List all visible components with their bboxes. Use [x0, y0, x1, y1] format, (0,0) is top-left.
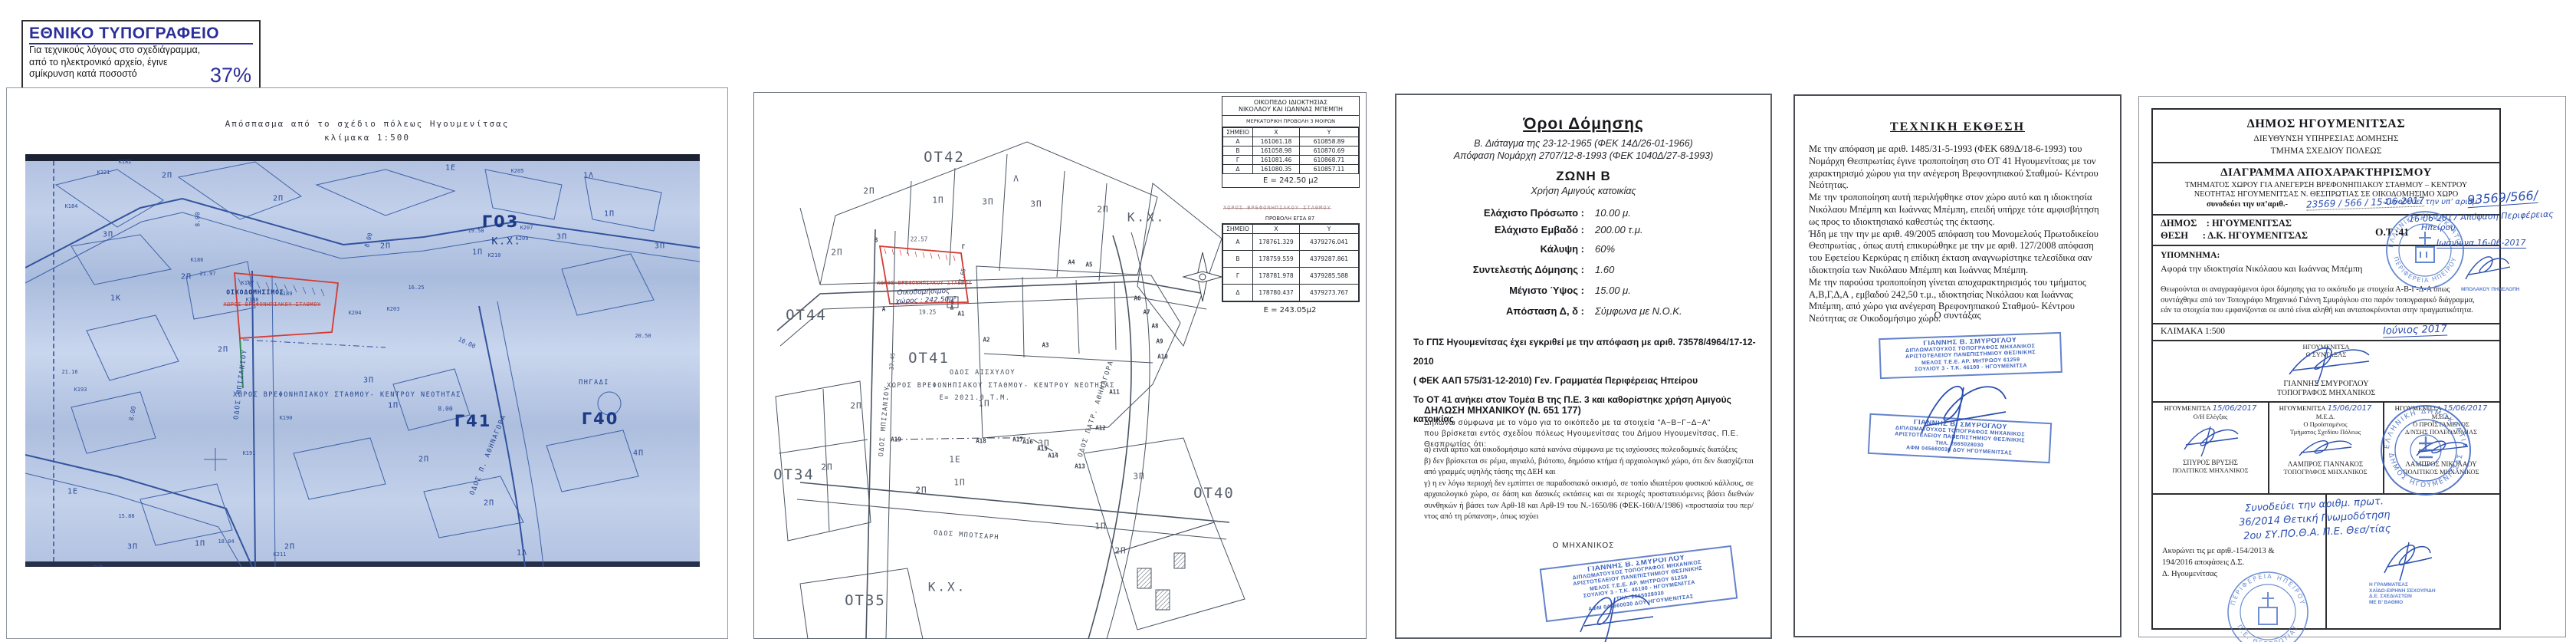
map-label: ΧΩΡΟΣ ΒΡΕΦΟΝΗΠΙΑΚΟΥ ΣΤΑΘΜΟΥ- ΚΕΝΤΡΟΥ ΝΕΟ…	[233, 391, 461, 399]
col-city: ΗΓΟΥΜΕΝΙΤΣΑ	[2164, 404, 2211, 412]
map-label: 19.25	[919, 309, 937, 316]
map-label: 3Π	[982, 197, 993, 207]
directorate: ΔΙΕΥΘΥΝΣΗ ΥΠΗΡΕΣΙΑΣ ΔΟΜΗΣΗΣ	[2153, 134, 2499, 143]
map-label: Κ211	[274, 551, 287, 558]
col-date-handwritten: 15/06/2017	[2213, 404, 2257, 413]
cell: Γ	[1223, 268, 1253, 285]
cell: 610857.11	[1300, 165, 1359, 174]
map-label: 2Π	[863, 186, 875, 196]
date-handwritten: Ιούνιος 2017	[2383, 324, 2447, 338]
report-paragraph: Ήδη με την την με αριθ. 49/2005 απόφαση …	[1809, 229, 2109, 277]
stamp-line: Δ.Ε. ΣΧΕΔΙΑΣΤΩΝ	[2369, 594, 2436, 600]
declaration-item: γ) η εν λόγω περιοχή δεν εμπίπτει σε παρ…	[1424, 479, 1754, 523]
col-header: Υ	[1300, 128, 1359, 137]
zone-title: ΖΩΝΗ Β	[1396, 169, 1770, 184]
cert-line: συντάχθηκε από τον Τοπογράφο Μηχανικό Γι…	[2161, 295, 2492, 306]
red-area-struck-label: ΧΩΡΟΣ ΒΡΕΦΟΝΗΠΙΑΚΟΥ ΣΤΑΘΜΟΥ	[223, 301, 320, 308]
map-label: ΧΩΡΟΣ ΒΡΕΦΟΝΗΠΙΑΚΟΥ ΣΤΑΘΜΟΥ- ΚΕΝΤΡΟΥ ΝΕΟ…	[887, 382, 1115, 390]
term-value: 1.60	[1595, 264, 1614, 275]
map-label: 2Π	[484, 499, 494, 508]
cell: Β	[1223, 251, 1253, 268]
map-label: 2Π	[850, 401, 861, 411]
map-label: 2Π	[93, 565, 103, 568]
col-role: Ο/Η Ελέγξας	[2153, 413, 2268, 420]
map-label: 1Ε	[445, 164, 456, 173]
map-label: ΠΗΓΑΔΙ	[579, 379, 609, 387]
map-label: 3Π	[1133, 472, 1144, 482]
declaration-item: α) είναι άρτιο και οικοδομήσιμο κατά καν…	[1424, 445, 1754, 456]
col-header: Χ	[1253, 225, 1300, 234]
map-label: Γ	[962, 244, 966, 251]
title-block-frame: ΔΗΜΟΣ ΗΓΟΥΜΕΝΙΤΣΑΣ ΔΙΕΥΘΥΝΣΗ ΥΠΗΡΕΣΙΑΣ Δ…	[2151, 108, 2501, 630]
signature-icon	[2295, 436, 2356, 460]
map-label: 2Π	[1114, 546, 1126, 556]
col-header: ΣΗΜΕΙΟ	[1223, 225, 1253, 234]
cell: 4379273.767	[1300, 285, 1359, 301]
cert-line: εάν τα στοιχεία που εμφανίζονται σε αυτό…	[2161, 305, 2492, 316]
map-label: Α19	[891, 436, 901, 443]
map-label: Κ191	[243, 450, 256, 456]
legend-line: Αφορά την ιδιοκτησία Νικόλαου και Ιωάννα…	[2161, 263, 2362, 275]
col-header: ΣΗΜΕΙΟ	[1223, 128, 1253, 137]
term-row: Απόσταση Δ, δ :Σύμφωνα με Ν.Ο.Κ.	[1412, 305, 1749, 317]
field-key: ΘΕΣΗ	[2161, 230, 2188, 241]
struck-note: ΧΩΡΟΣ ΒΡΕΦΟΝΗΠΙΑΚΟΥ ΣΤΑΘΜΟΥ	[1223, 205, 1331, 211]
map-label: 1Λ	[517, 549, 527, 558]
term-key: Απόσταση Δ, δ :	[1412, 305, 1584, 317]
term-value: 60%	[1595, 243, 1615, 255]
term-value: Σύμφωνα με Ν.Ο.Κ.	[1595, 305, 1682, 317]
term-row: Κάλυψη :60%	[1412, 243, 1749, 255]
table-row: ΣΗΜΕΙΟ Χ Υ	[1223, 225, 1359, 234]
col-name: ΣΠΥΡΟΣ ΒΡΥΣΗΣ	[2153, 459, 2268, 466]
term-row: Μέγιστο Ύψος :15.00 μ.	[1412, 285, 1749, 296]
cell: 161061.18	[1253, 137, 1300, 147]
cell: 4379285.588	[1300, 268, 1359, 285]
table-row: Δ178780.4374379273.767	[1223, 285, 1359, 301]
divider	[2153, 323, 2499, 324]
table2-title: ΠΡΟΒΟΛΗ ΕΓΣΑ 87	[1222, 216, 1358, 222]
engineer-name: ΓΙΑΝΝΗΣ ΣΜΥΡΟΓΛΟΥ	[2153, 380, 2499, 388]
cell: Δ	[1223, 285, 1253, 301]
table-row: ΣΗΜΕΙΟ Χ Υ	[1223, 128, 1359, 137]
map-label: ΟΔΟΣ ΑΙΣΧΥΛΟΥ	[950, 369, 1016, 377]
declaration-item: β) δεν βρίσκεται σε ρέμα, αιγιαλό, βιότο…	[1424, 456, 1754, 479]
map-label: Α6	[1134, 295, 1140, 302]
map-label: Γ41	[454, 412, 492, 430]
page-technical-report: ΤΕΧΝΙΚΗ ΕΚΘΕΣΗ Με την απόφαση με αριθ. 1…	[1793, 94, 2122, 637]
banner-line: Για τεχνικούς λόγους στο σχεδιάγραμμα,	[29, 44, 253, 57]
map-label: 3Π	[103, 231, 113, 239]
map-label: Λ	[1013, 174, 1019, 184]
map-label: Α13	[1075, 463, 1085, 470]
table-header: ΟΙΚΟΠΕΔΟ ΙΔΙΟΚΤΗΣΙΑΣ	[1222, 97, 1359, 106]
scanned-document-strip: ΕΘΝΙΚΟ ΤΥΠΟΓΡΑΦΕΙΟ Για τεχνικούς λόγους …	[0, 0, 2576, 642]
term-key: Συντελεστής Δόμησης :	[1412, 264, 1584, 275]
map-label: Α15	[1037, 446, 1048, 453]
gps-line: Το ΓΠΣ Ηγουμενίτσας έχει εγκριθεί με την…	[1413, 333, 1760, 371]
signature-icon	[1573, 586, 1665, 642]
col-header: Υ	[1300, 225, 1359, 234]
reduction-percent: 37%	[210, 64, 251, 87]
survey-map-area: ΧΩΡΟΣ ΒΡΕΦΟΝΗΠΙΑΚΟΥ ΣΤΑΘΜΟΥ Οικοδομήσιμο…	[754, 93, 1367, 639]
term-value: 10.00 μ.	[1595, 207, 1631, 219]
map-label: Α10	[1157, 354, 1168, 361]
col-header: Χ	[1253, 128, 1300, 137]
map-label: Κ221	[97, 170, 110, 176]
map-label: 1Π	[1094, 522, 1106, 532]
map-label: 22.57	[911, 236, 928, 243]
map-label: 1Π	[195, 540, 205, 548]
cell: Α	[1223, 234, 1253, 251]
cell: 161080.35	[1253, 165, 1300, 174]
banner-title: ΕΘΝΙΚΟ ΤΥΠΟΓΡΑΦΕΙΟ	[29, 25, 253, 44]
map-label: Κ187	[241, 280, 254, 286]
municipality-title: ΔΗΜΟΣ ΗΓΟΥΜΕΝΙΤΣΑΣ	[2153, 117, 2499, 131]
map-label: 3Π	[363, 377, 374, 385]
field-dimos: ΔΗΜΟΣ : ΗΓΟΥΜΕΝΙΤΣΑΣ	[2161, 218, 2292, 229]
cell: Δ	[1223, 165, 1253, 174]
divider	[2153, 162, 2499, 163]
area-value: Ε = 242.50 μ2	[1222, 174, 1359, 187]
coords-table-egsa87: ΣΗΜΕΙΟ Χ Υ Α178761.3294379276.041 Β17875…	[1222, 223, 1360, 302]
field-value: : Δ.Κ. ΗΓΟΥΜΕΝΙΤΣΑΣ	[2203, 230, 2308, 241]
report-body: Με την απόφαση με αριθ. 1485/31-5-1993 (…	[1809, 143, 2109, 325]
cell: Α	[1223, 137, 1253, 147]
map-label: Α5	[1085, 262, 1092, 268]
map-label: Α12	[1095, 425, 1106, 432]
term-row: Συντελεστής Δόμησης :1.60	[1412, 264, 1749, 275]
diagram-sub: ΤΜΗΜΑΤΟΣ ΧΩΡΟΥ ΓΙΑ ΑΝΕΓΕΡΣΗ ΒΡΕΦΟΝΗΠΙΑΚΟ…	[2153, 181, 2499, 189]
page-survey-map: ΧΩΡΟΣ ΒΡΕΦΟΝΗΠΙΑΚΟΥ ΣΤΑΘΜΟΥ Οικοδομήσιμο…	[753, 92, 1367, 639]
cell: 4379287.861	[1300, 251, 1359, 268]
map-label: Κ204	[349, 310, 362, 316]
map-label: 8.00	[195, 212, 202, 226]
map-label: Κ.Χ.	[491, 236, 521, 248]
col-name: ΛΑΜΠΡΟΣ ΓΙΑΝΝΑΚΟΣ	[2268, 460, 2383, 468]
map-label: Κ210	[488, 252, 501, 258]
map-label: Κ.Χ.	[1127, 210, 1167, 225]
map-label: 2Π	[1097, 205, 1108, 215]
col-role: Τμήματος Σχεδίου Πόλεως	[2268, 428, 2383, 436]
cell: 178780.437	[1253, 285, 1300, 301]
sign-col-elegxas: ΗΓΟΥΜΕΝΙΤΣΑ 15/06/2017 Ο/Η Ελέγξας ΣΠΥΡΟ…	[2153, 401, 2268, 493]
map-label: Α2	[983, 337, 989, 344]
map-label: 21.16	[61, 369, 77, 375]
field-value: : ΗΓΟΥΜΕΝΙΤΣΑΣ	[2207, 218, 2292, 229]
col-city: ΗΓΟΥΜΕΝΙΤΣΑ	[2279, 404, 2326, 412]
map-label: Κ188	[246, 297, 259, 303]
map-label: Α11	[1109, 389, 1120, 396]
map-label: 1Π	[604, 210, 615, 219]
page-title-block: ΔΗΜΟΣ ΗΓΟΥΜΕΝΙΤΣΑΣ ΔΙΕΥΘΥΝΣΗ ΥΠΗΡΕΣΙΑΣ Δ…	[2138, 96, 2566, 637]
legend-title: ΥΠΟΜΝΗΜΑ:	[2161, 251, 2220, 260]
term-value: 15.00 μ.	[1595, 285, 1631, 296]
map-label: 1Ε	[949, 455, 960, 465]
map-label: 2Π	[915, 486, 927, 495]
stamp-line: Η ΓΡΑΜΜΑΤΕΑΣ	[2369, 582, 2436, 588]
map-label: Α16	[1022, 439, 1033, 446]
map-label: Α8	[1151, 323, 1158, 330]
map-label: 2Π	[284, 543, 295, 551]
map-label: Α4	[1068, 259, 1075, 266]
map-label: Α18	[976, 438, 986, 445]
map-label: Κ190	[280, 415, 293, 421]
map-label: Κ186	[191, 257, 204, 263]
term-row: Ελάχιστο Πρόσωπο :10.00 μ.	[1412, 207, 1749, 219]
map-label: Κ184	[65, 203, 78, 209]
declaration-line: Δηλώνω σύμφωνα με το νόμο για το οικόπεδ…	[1424, 418, 1754, 429]
map-label: Β	[875, 237, 878, 244]
stamp-line: ΜΕ Β’ ΒΑΘΜΟ	[2369, 600, 2436, 606]
table-row: Α178761.3294379276.041	[1223, 234, 1359, 251]
terms-sub: Απόφαση Νομάρχη 2707/12-8-1993 (ΦΕΚ 1040…	[1396, 150, 1770, 161]
map-scale: κλίμακα 1:500	[7, 133, 727, 143]
map-label: Α3	[1042, 342, 1048, 349]
signature-icon	[2180, 422, 2241, 457]
map-label: 18.04	[218, 538, 234, 545]
col-role: Ο Προϊσταμένος	[2268, 420, 2383, 428]
map-label: 1Π	[932, 196, 943, 206]
diagram-title: ΔΙΑΓΡΑΜΜΑ ΑΠΟΧΑΡΑΚΤΗΡΙΣΜΟΥ	[2153, 166, 2499, 179]
report-title: ΤΕΧΝΙΚΗ ΕΚΘΕΣΗ	[1795, 120, 2120, 134]
map-label: 4Π	[633, 449, 644, 458]
table-row: Β178759.5594379287.861	[1223, 251, 1359, 268]
map-label: ΟΤ41	[908, 350, 950, 367]
map-label: Α	[882, 306, 886, 313]
department: ΤΜΗΜΑ ΣΧΕΔΙΟΥ ΠΟΛΕΩΣ	[2153, 147, 2499, 156]
table-row: Α161061.18610858.89	[1223, 137, 1359, 147]
cell: 610870.69	[1300, 147, 1359, 156]
map-label: Α14	[1048, 453, 1058, 459]
term-key: Μέγιστο Ύψος :	[1412, 285, 1584, 296]
note-line: Ακυρώνει τις με αριθ.-154/2013 &	[2162, 545, 2319, 557]
scale-field: ΚΛΙΜΑΚΑ 1:500	[2161, 327, 2225, 336]
map-label: 2Π	[218, 346, 228, 354]
blueprint-linework	[25, 154, 700, 567]
zone-use: Χρήση Αμιγούς κατοικίας	[1396, 186, 1770, 196]
secretary-stamp-text: Η ΓΡΑΜΜΑΤΕΑΣ ΧΑΪΔΩ-ΕΙΡΗΝΗ ΣΕΧΟΥΡΙΔΗ Δ.Ε.…	[2369, 582, 2436, 605]
accompanies-label: συνοδεύει την υπ’αριθ.-	[2207, 200, 2288, 209]
signature-icon	[2283, 340, 2375, 386]
table-row: Γ178781.9784379285.588	[1223, 268, 1359, 285]
coords-table-mercator: ΟΙΚΟΠΕΔΟ ΙΔΙΟΚΤΗΣΙΑΣ ΝΙΚΟΛΑΟΥ ΚΑΙ ΙΩΑΝΝΑ…	[1222, 96, 1360, 188]
signer-label: Ο συντάξας	[1795, 309, 2120, 321]
table-row: Β161058.98610870.69	[1223, 147, 1359, 156]
map-label: 1Ε	[67, 488, 78, 496]
cell: 178781.978	[1253, 268, 1300, 285]
red-area-label: ΟΙΚΟΔΟΜΗΣΙΜΟΣ	[226, 289, 284, 296]
report-paragraph: Με την απόφαση με αριθ. 1485/31-5-1993 (…	[1809, 143, 2109, 192]
round-stamp-municipality: ΕΛΛΗΝΙΚΗ ΔΗΜΟΚΡΑΤΙΑ ΔΗΜΟΣ ΗΓΟΥΜΕΝΙΤΣΑΣ	[2375, 400, 2476, 501]
map-label: 21.97	[199, 271, 215, 277]
map-label: Κ.Χ.	[928, 580, 967, 594]
map-label: ΟΤ35	[845, 592, 886, 609]
stamp-arc-text: ΠΕΡΙΦΕΡΕΙΑ ΗΠΕΙΡΟΥ	[2392, 255, 2458, 284]
col-city-date: ΗΓΟΥΜΕΝΙΤΣΑ 15/06/2017	[2153, 404, 2268, 413]
col-date-handwritten: 15/06/2017	[2328, 404, 2372, 413]
map-label: Κ189	[280, 291, 293, 297]
cell: 178759.559	[1253, 251, 1300, 268]
declaration-title: ΔΗΛΩΣΗ ΜΗΧΑΝΙΚΟΥ (Ν. 651 177)	[1424, 405, 1581, 416]
term-key: Κάλυψη :	[1412, 243, 1584, 255]
field-key: ΔΗΜΟΣ	[2161, 218, 2197, 229]
map-label: 15.88	[118, 513, 134, 519]
map-label: Κ207	[520, 225, 533, 231]
map-label: 2Π	[418, 456, 429, 464]
map-label: ΟΤ42	[924, 149, 965, 166]
cell: Γ	[1223, 156, 1253, 165]
cell: Β	[1223, 147, 1253, 156]
map-title: Απόσπασμα από το σχέδιο πόλεως Ηγουμενίτ…	[7, 119, 727, 129]
cell: 161081.46	[1253, 156, 1300, 165]
map-label: 2Π	[273, 195, 284, 203]
gps-line: ( ΦΕΚ ΑΑΠ 575/31-12-2010) Γεν. Γραμματέα…	[1413, 371, 1760, 390]
map-label: 3Π	[556, 233, 567, 242]
map-label: 3Π	[1030, 199, 1042, 209]
table-row: Γ161081.46610868.71	[1223, 156, 1359, 165]
term-key: Ελάχιστο Εμβαδό :	[1412, 224, 1584, 235]
cell: 610858.89	[1300, 137, 1359, 147]
map-label: 2Π	[380, 242, 391, 251]
map-label: Κ193	[74, 387, 87, 393]
map-label: Α9	[1156, 338, 1163, 345]
official-name-blue: ΜΠΟΛΑΚΟΥ ΠΗΝΕΛΟΠΗ	[2461, 287, 2519, 293]
signature-icon	[2375, 536, 2437, 582]
map-label: Κ205	[511, 168, 524, 174]
map-label: 2Π	[821, 463, 832, 472]
term-key: Ελάχιστο Πρόσωπο :	[1412, 207, 1584, 219]
terms-sub: Β. Διάταγμα της 23-12-1965 (ΦΕΚ 14Δ/26-0…	[1396, 138, 1770, 149]
terms-title: Όροι Δόμησης	[1396, 115, 1770, 133]
map-label: 3Π	[127, 543, 138, 551]
map-label: 8.00	[438, 406, 452, 413]
svg-text:ΠΕΡΙΦΕΡΕΙΑ ΗΠΕΙΡΟΥ: ΠΕΡΙΦΕΡΕΙΑ ΗΠΕΙΡΟΥ	[2392, 255, 2458, 284]
map-label: 16.25	[408, 285, 424, 291]
cell: 161058.98	[1253, 147, 1300, 156]
map-label: ΟΤ34	[773, 466, 815, 483]
col-city-date: ΗΓΟΥΜΕΝΙΤΣΑ 15/06/2017	[2268, 404, 2383, 413]
map-label: 3Π	[655, 242, 665, 251]
col-role: Μ.Ε.Δ.	[2268, 413, 2383, 420]
cell: 178761.329	[1253, 234, 1300, 251]
map-label: Α7	[1143, 309, 1150, 316]
cell: 610868.71	[1300, 156, 1359, 165]
map-label: 1Π	[388, 402, 399, 410]
term-value: 200.00 τ.μ.	[1595, 224, 1643, 235]
sign-col-tmima: ΗΓΟΥΜΕΝΙΤΣΑ 15/06/2017 Μ.Ε.Δ. Ο Προϊσταμ…	[2268, 401, 2383, 493]
col-title: ΤΟΠΟΓΡΑΦΟΣ ΜΗΧΑΝΙΚΟΣ	[2268, 468, 2383, 476]
page-building-terms: Όροι Δόμησης Β. Διάταγμα της 23-12-1965 …	[1395, 94, 1772, 639]
map-label: 2Π	[162, 172, 172, 180]
map-label: 1Π	[953, 478, 965, 488]
map-label: ΟΤ44	[786, 307, 827, 324]
col-title: ΠΟΛΙΤΙΚΟΣ ΜΗΧΑΝΙΚΟΣ	[2153, 466, 2268, 474]
map-label: 2Π	[181, 273, 192, 281]
declaration-items: α) είναι άρτιο και οικοδομήσιμο κατά καν…	[1424, 445, 1754, 523]
map-label: 1Λ	[583, 172, 594, 180]
map-label: Κ182	[119, 159, 132, 165]
stamp-line: ΧΑΪΔΩ-ΕΙΡΗΝΗ ΣΕΧΟΥΡΙΔΗ	[2369, 588, 2436, 594]
map-label: ΟΤ40	[1193, 485, 1235, 502]
map-label: Κ203	[387, 306, 400, 312]
round-stamp-epirus: ΕΛΛΗΝΙΚΗ ΔΗΜΟΚΡΑΤΙΑ ΠΕΡΙΦΕΡΕΙΑ ΗΠΕΙΡΟΥ	[2381, 206, 2469, 295]
map-label: Α1	[957, 311, 964, 318]
map-label: 1Κ	[110, 295, 121, 303]
map-label: Ε= 2021.0 Τ.Μ.	[940, 394, 1011, 402]
map-label: 20.50	[635, 333, 651, 339]
table-header: ΝΙΚΟΛΑΟΥ ΚΑΙ ΙΩΑΝΝΑΣ ΜΠΕΜΠΗ	[1222, 106, 1359, 116]
report-paragraph: Με την τροποποίηση αυτή περιλήφθηκε στον…	[1809, 192, 2109, 228]
term-row: Ελάχιστο Εμβαδό :200.00 τ.μ.	[1412, 224, 1749, 235]
engineer-title: ΤΟΠΟΓΡΑΦΟΣ ΜΗΧΑΝΙΚΟΣ	[2153, 389, 2499, 397]
map-label: Γ03	[482, 212, 520, 231]
table-row: Δ161080.35610857.11	[1223, 165, 1359, 174]
map-label: Ε	[951, 299, 955, 306]
area-value: Ε = 243.05μ2	[1222, 306, 1358, 314]
printing-house-banner: ΕΘΝΙΚΟ ΤΥΠΟΓΡΑΦΕΙΟ Για τεχνικούς λόγους …	[21, 20, 261, 91]
round-stamp-thesprotia: ΠΕΡΙΦΕΡΕΙΑ ΗΠΕΙΡΟΥ Π.Ε. ΘΕΣΠΡΩΤΙΑΣ	[2222, 566, 2314, 642]
table-subtitle: ΜΕΡΚΑΤΟΡΙΚΗ ΠΡΟΒΟΛΗ 3 ΜΟΙΡΩΝ	[1222, 116, 1359, 127]
map-label: Γ40	[582, 410, 619, 428]
field-thesi: ΘΕΣΗ : Δ.Κ. ΗΓΟΥΜΕΝΙΤΣΑΣ	[2161, 230, 2308, 242]
signature-icon	[1910, 372, 2017, 456]
map-label: Α17	[1012, 436, 1023, 443]
map-label: 1Π	[472, 249, 483, 257]
blueprint-map-area: ΟΙΚΟΔΟΜΗΣΙΜΟΣ ΧΩΡΟΣ ΒΡΕΦΟΝΗΠΙΑΚΟΥ ΣΤΑΘΜΟ…	[25, 154, 700, 567]
map-label: 2Π	[831, 248, 842, 258]
page-blueprint-map: Απόσπασμα από το σχέδιο πόλεως Ηγουμενίτ…	[6, 87, 728, 639]
cell: 4379276.041	[1300, 234, 1359, 251]
